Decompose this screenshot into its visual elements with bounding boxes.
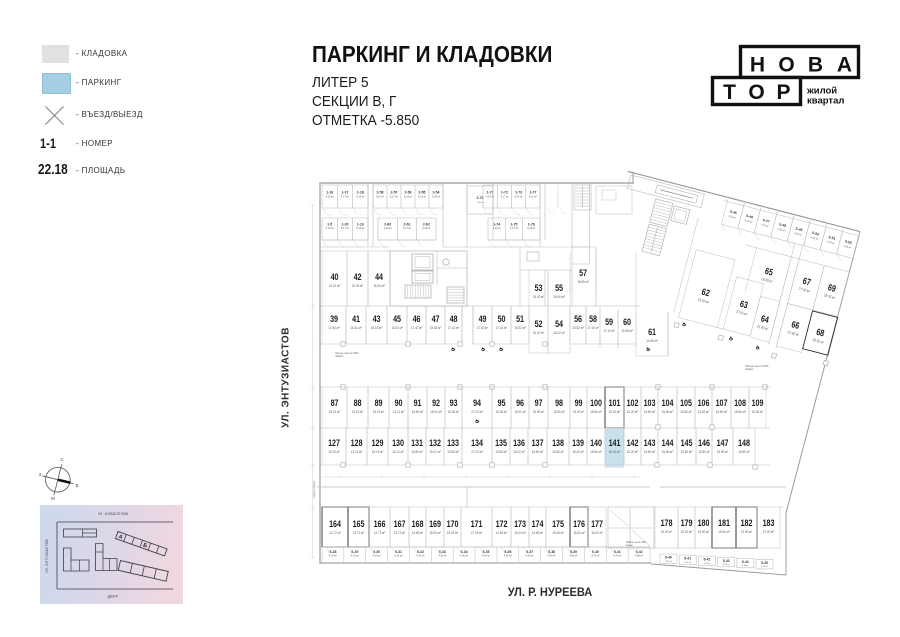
svg-text:4.35 м²: 4.35 м² (793, 232, 802, 237)
svg-text:4.25 м²: 4.25 м² (394, 555, 402, 558)
svg-text:2-55: 2-55 (418, 191, 425, 195)
svg-text:1-18: 1-18 (357, 191, 364, 195)
svg-text:5-41: 5-41 (684, 557, 691, 561)
svg-text:14.80 м²: 14.80 м² (412, 531, 424, 535)
svg-text:4.48 м²: 4.48 м² (742, 564, 749, 567)
svg-text:57: 57 (579, 268, 587, 278)
svg-text:15.80 м²: 15.80 м² (412, 410, 424, 414)
svg-text:5.17 м²: 5.17 м² (341, 196, 349, 199)
svg-text:67: 67 (802, 276, 813, 288)
svg-text:13.72 м²: 13.72 м² (329, 531, 341, 535)
svg-text:4.35 м²: 4.35 м² (438, 555, 446, 558)
svg-text:15.08 м²: 15.08 м² (621, 329, 633, 333)
svg-text:13.12 м²: 13.12 м² (392, 450, 404, 454)
svg-text:15.80 м²: 15.80 м² (552, 450, 564, 454)
svg-text:169: 169 (429, 519, 441, 529)
svg-text:13.72 м²: 13.72 м² (394, 531, 406, 535)
svg-text:131: 131 (411, 438, 423, 448)
svg-text:5-35: 5-35 (482, 550, 489, 554)
svg-text:104: 104 (662, 398, 674, 408)
svg-text:43: 43 (373, 314, 381, 324)
svg-text:4.20 м²: 4.20 м² (373, 555, 381, 558)
svg-text:28.35 м²: 28.35 м² (823, 293, 836, 300)
svg-text:17.80 м²: 17.80 м² (328, 326, 340, 330)
svg-text:габарит: габарит (745, 368, 754, 371)
svg-text:5-29: 5-29 (351, 550, 358, 554)
svg-text:42: 42 (354, 272, 362, 282)
svg-text:90: 90 (395, 398, 403, 408)
svg-text:148: 148 (738, 438, 750, 448)
svg-text:2-60: 2-60 (384, 223, 391, 227)
svg-text:174: 174 (532, 519, 544, 529)
svg-text:68: 68 (815, 327, 826, 339)
svg-text:92: 92 (432, 398, 440, 408)
svg-text:5-36: 5-36 (504, 550, 511, 554)
svg-text:15.24 м²: 15.24 м² (514, 531, 526, 535)
svg-text:5-40: 5-40 (592, 550, 599, 554)
svg-text:47: 47 (432, 314, 440, 324)
svg-text:18.00 м²: 18.00 м² (609, 450, 621, 454)
svg-text:15.15 м²: 15.15 м² (373, 410, 385, 414)
svg-text:177: 177 (591, 519, 603, 529)
svg-text:2-56: 2-56 (404, 191, 411, 195)
svg-text:1-74: 1-74 (493, 223, 500, 227)
svg-text:С: С (60, 457, 63, 462)
svg-text:ДВОР: ДВОР (108, 595, 119, 599)
svg-text:109: 109 (752, 398, 764, 408)
svg-text:17.40 м²: 17.40 м² (587, 326, 599, 330)
svg-text:107: 107 (716, 398, 728, 408)
svg-text:15.52 м²: 15.52 м² (430, 326, 442, 330)
svg-text:93: 93 (450, 398, 458, 408)
svg-text:15.80 м²: 15.80 м² (447, 450, 459, 454)
svg-text:134: 134 (471, 438, 483, 448)
svg-text:18.30 м²: 18.30 м² (373, 284, 385, 288)
svg-text:69: 69 (827, 282, 838, 294)
svg-text:1-75: 1-75 (510, 223, 517, 227)
svg-text:1-19: 1-19 (357, 223, 364, 227)
svg-text:6.24 м²: 6.24 м² (356, 196, 364, 199)
svg-text:5-43: 5-43 (723, 559, 730, 563)
svg-text:4.40 м²: 4.40 м² (810, 236, 819, 241)
svg-text:Б: Б (142, 543, 148, 550)
svg-text:96: 96 (516, 398, 524, 408)
svg-text:62: 62 (701, 287, 712, 299)
svg-text:5-44: 5-44 (742, 560, 749, 564)
svg-text:100: 100 (590, 398, 602, 408)
svg-text:15.52 м²: 15.52 м² (514, 326, 526, 330)
svg-text:166: 166 (374, 519, 386, 529)
svg-text:габарит: габарит (335, 355, 344, 358)
svg-text:15.20 м²: 15.20 м² (627, 450, 639, 454)
svg-text:88: 88 (354, 398, 362, 408)
svg-text:27.03 м²: 27.03 м² (471, 450, 483, 454)
svg-text:5.17 м²: 5.17 м² (403, 227, 411, 230)
svg-text:15.80 м²: 15.80 м² (716, 410, 728, 414)
svg-text:УЛ. НОВОСЕЛОВ: УЛ. НОВОСЕЛОВ (98, 512, 128, 516)
svg-text:15.15 м²: 15.15 м² (328, 450, 340, 454)
svg-text:15.02 м²: 15.02 м² (429, 531, 441, 535)
svg-text:4.10 м²: 4.10 м² (326, 227, 334, 230)
svg-text:5.38 м²: 5.38 м² (432, 196, 440, 199)
svg-text:заезд в паркинг: заезд в паркинг (313, 481, 316, 498)
svg-text:59: 59 (605, 317, 613, 327)
svg-text:15.51 м²: 15.51 м² (573, 531, 585, 535)
svg-text:6.24 м²: 6.24 м² (422, 227, 430, 230)
svg-text:4.60 м²: 4.60 м² (548, 555, 556, 558)
svg-text:20.05 м²: 20.05 м² (352, 284, 364, 288)
svg-text:15.80 м²: 15.80 м² (662, 410, 674, 414)
svg-text:48: 48 (450, 314, 458, 324)
svg-text:146: 146 (698, 438, 710, 448)
svg-text:45: 45 (393, 314, 401, 324)
svg-text:101: 101 (609, 398, 621, 408)
svg-text:14.51 м²: 14.51 м² (391, 326, 403, 330)
svg-text:27.03 м²: 27.03 м² (471, 531, 483, 535)
svg-text:4.30 м²: 4.30 м² (777, 228, 786, 233)
svg-text:2-57: 2-57 (390, 191, 397, 195)
svg-text:182: 182 (741, 518, 753, 528)
svg-text:В: В (76, 483, 79, 488)
svg-text:15.02 м²: 15.02 м² (553, 331, 565, 335)
svg-text:1-76: 1-76 (528, 223, 535, 227)
svg-text:4.50 м²: 4.50 м² (504, 555, 512, 558)
svg-text:13.15 м²: 13.15 м² (351, 450, 363, 454)
svg-text:15.80 м²: 15.80 м² (590, 450, 602, 454)
svg-text:4.25 м²: 4.25 м² (761, 223, 770, 228)
svg-text:4.10 м²: 4.10 м² (329, 555, 337, 558)
svg-text:46: 46 (413, 314, 421, 324)
svg-text:1-16: 1-16 (326, 191, 333, 195)
svg-text:15.01 м²: 15.01 м² (430, 410, 442, 414)
svg-text:102: 102 (627, 398, 639, 408)
svg-text:56: 56 (574, 314, 582, 324)
svg-text:13.72 м²: 13.72 м² (353, 531, 365, 535)
svg-text:5-42: 5-42 (636, 550, 643, 554)
svg-text:4.40 м²: 4.40 м² (460, 555, 468, 558)
svg-text:15.02 м²: 15.02 м² (513, 450, 525, 454)
svg-text:17.40 м²: 17.40 м² (603, 329, 615, 333)
svg-text:13.82 м²: 13.82 м² (698, 450, 710, 454)
svg-text:171: 171 (471, 519, 483, 529)
svg-text:17.42 м²: 17.42 м² (448, 326, 460, 330)
svg-text:6.24 м²: 6.24 м² (356, 227, 364, 230)
svg-text:141: 141 (609, 438, 621, 448)
svg-text:105: 105 (680, 398, 692, 408)
svg-text:140: 140 (590, 438, 602, 448)
svg-text:4.10 м²: 4.10 м² (493, 227, 501, 230)
svg-text:15.06 м²: 15.06 м² (552, 531, 564, 535)
svg-text:15.80 м²: 15.80 м² (644, 410, 656, 414)
svg-text:4.34 м²: 4.34 м² (704, 562, 711, 565)
svg-text:94: 94 (473, 398, 481, 408)
svg-text:6.24 м²: 6.24 м² (404, 196, 412, 199)
svg-text:15.80 м²: 15.80 м² (495, 450, 507, 454)
svg-text:167: 167 (394, 519, 406, 529)
svg-text:183: 183 (763, 518, 775, 528)
svg-text:17.42 м²: 17.42 м² (477, 326, 489, 330)
svg-text:4.65 м²: 4.65 м² (569, 555, 577, 558)
svg-text:УЛ. ЭНТУЗИАСТОВ: УЛ. ЭНТУЗИАСТОВ (45, 539, 49, 573)
svg-text:50: 50 (498, 314, 506, 324)
svg-text:15.20 м²: 15.20 м² (572, 450, 584, 454)
svg-text:4.20 м²: 4.20 м² (744, 219, 753, 224)
svg-text:15.80 м²: 15.80 м² (496, 410, 508, 414)
svg-text:13.90 м²: 13.90 м² (741, 530, 753, 534)
svg-text:87: 87 (331, 398, 339, 408)
svg-text:1-77: 1-77 (529, 191, 536, 195)
svg-text:98: 98 (555, 398, 563, 408)
svg-text:137: 137 (532, 438, 544, 448)
svg-text:5.17 м²: 5.17 м² (500, 196, 508, 199)
svg-text:4.75 м²: 4.75 м² (613, 555, 621, 558)
svg-text:164: 164 (329, 519, 341, 529)
svg-text:15.01 м²: 15.01 м² (514, 410, 526, 414)
svg-text:144: 144 (662, 438, 674, 448)
svg-text:5.17 м²: 5.17 м² (510, 227, 518, 230)
svg-text:4.10 м²: 4.10 м² (326, 196, 334, 199)
svg-text:15.80 м²: 15.80 м² (533, 410, 545, 414)
svg-text:180: 180 (698, 518, 710, 528)
svg-text:27.60 м²: 27.60 м² (787, 330, 800, 337)
svg-text:133: 133 (447, 438, 459, 448)
svg-text:41: 41 (352, 314, 360, 324)
svg-text:5-37: 5-37 (526, 550, 533, 554)
svg-text:15.80 м²: 15.80 м² (681, 450, 693, 454)
svg-text:27.60 м²: 27.60 м² (798, 287, 811, 294)
svg-text:15.02 м²: 15.02 м² (447, 531, 459, 535)
svg-text:15.52 м²: 15.52 м² (572, 326, 584, 330)
svg-text:2-54: 2-54 (432, 191, 439, 195)
svg-text:4.55 м²: 4.55 м² (761, 565, 768, 568)
svg-text:51: 51 (516, 314, 524, 324)
svg-text:139: 139 (572, 438, 584, 448)
svg-text:15.80 м²: 15.80 м² (738, 450, 750, 454)
svg-text:58: 58 (589, 314, 597, 324)
svg-text:145: 145 (681, 438, 693, 448)
svg-text:14.85 м²: 14.85 м² (646, 339, 658, 343)
svg-text:49: 49 (479, 314, 487, 324)
svg-text:15.00 м²: 15.00 м² (609, 410, 621, 414)
svg-text:5-30: 5-30 (373, 550, 380, 554)
svg-text:Ю: Ю (51, 496, 56, 501)
svg-text:15.80 м²: 15.80 м² (734, 410, 746, 414)
svg-text:19.02 м²: 19.02 м² (329, 284, 341, 288)
svg-text:15.80 м²: 15.80 м² (553, 410, 565, 414)
svg-text:1-17: 1-17 (341, 191, 348, 195)
svg-text:17.42 м²: 17.42 м² (496, 326, 508, 330)
svg-text:17.42 м²: 17.42 м² (411, 326, 423, 330)
svg-text:16.31 м²: 16.31 м² (350, 326, 362, 330)
svg-text:15.02 м²: 15.02 м² (533, 295, 545, 299)
svg-text:99: 99 (575, 398, 583, 408)
svg-text:15.15 м²: 15.15 м² (372, 450, 384, 454)
svg-text:4.10 м²: 4.10 м² (376, 196, 384, 199)
svg-text:15.06 м²: 15.06 м² (553, 295, 565, 299)
svg-text:15.90 м²: 15.90 м² (718, 530, 730, 534)
svg-text:4.31 м²: 4.31 м² (418, 196, 426, 199)
svg-text:15.20 м²: 15.20 м² (661, 530, 673, 534)
svg-text:61: 61 (648, 327, 656, 337)
svg-text:4.30 м²: 4.30 м² (416, 555, 424, 558)
svg-text:14.80 м²: 14.80 м² (532, 531, 544, 535)
svg-text:15.80 м²: 15.80 м² (590, 410, 602, 414)
svg-text:103: 103 (644, 398, 656, 408)
svg-text:5-42: 5-42 (704, 558, 711, 562)
svg-text:54: 54 (555, 319, 563, 329)
svg-text:91: 91 (414, 398, 422, 408)
svg-text:138: 138 (552, 438, 564, 448)
svg-text:28.30 м²: 28.30 м² (812, 338, 825, 345)
svg-text:106: 106 (698, 398, 710, 408)
svg-text:136: 136 (513, 438, 525, 448)
svg-text:181: 181 (718, 518, 730, 528)
svg-text:5-34: 5-34 (461, 550, 468, 554)
svg-text:5-31: 5-31 (395, 550, 402, 554)
svg-text:5.17 м²: 5.17 м² (390, 196, 398, 199)
svg-text:13.12 м²: 13.12 м² (393, 410, 405, 414)
svg-text:179: 179 (681, 518, 693, 528)
svg-text:2-70: 2-70 (476, 196, 483, 200)
svg-text:132: 132 (429, 438, 441, 448)
svg-text:27.03 м²: 27.03 м² (471, 410, 483, 414)
svg-text:143: 143 (644, 438, 656, 448)
svg-text:15.80 м²: 15.80 м² (644, 450, 656, 454)
svg-text:172: 172 (496, 519, 508, 529)
svg-text:4.45 м²: 4.45 м² (826, 240, 835, 245)
svg-text:89: 89 (375, 398, 383, 408)
svg-text:19.02 м²: 19.02 м² (697, 298, 710, 305)
svg-text:4.41 м²: 4.41 м² (723, 563, 730, 566)
svg-text:4.55 м²: 4.55 м² (526, 555, 534, 558)
svg-text:19.00 м²: 19.00 м² (761, 277, 774, 284)
svg-text:129: 129 (372, 438, 384, 448)
svg-text:4.45 м²: 4.45 м² (482, 555, 490, 558)
svg-text:5-28: 5-28 (329, 550, 336, 554)
svg-text:13.15 м²: 13.15 м² (352, 410, 364, 414)
svg-text:15.80 м²: 15.80 м² (532, 450, 544, 454)
svg-text:178: 178 (661, 518, 673, 528)
svg-text:5-40: 5-40 (665, 556, 672, 560)
svg-text:64: 64 (760, 314, 771, 326)
svg-text:6.24 м²: 6.24 м² (515, 196, 523, 199)
svg-text:А: А (118, 534, 124, 541)
svg-text:147: 147 (717, 438, 729, 448)
svg-text:15.20 м²: 15.20 м² (627, 410, 639, 414)
svg-text:15.80 м²: 15.80 м² (662, 450, 674, 454)
svg-text:15.02 м²: 15.02 м² (533, 331, 545, 335)
svg-text:66: 66 (790, 319, 801, 331)
svg-text:55: 55 (555, 283, 563, 293)
svg-text:14.80 м²: 14.80 м² (496, 531, 508, 535)
svg-text:175: 175 (552, 519, 564, 529)
svg-text:165: 165 (353, 519, 365, 529)
svg-text:15.80 м²: 15.80 м² (680, 410, 692, 414)
svg-text:4.15 м²: 4.15 м² (351, 555, 359, 558)
svg-text:5-38: 5-38 (548, 550, 555, 554)
svg-text:1-20: 1-20 (341, 223, 348, 227)
svg-text:6.24 м²: 6.24 м² (527, 227, 535, 230)
svg-text:108: 108 (734, 398, 746, 408)
svg-text:5-32: 5-32 (417, 550, 424, 554)
svg-text:2-58: 2-58 (376, 191, 383, 195)
svg-text:44: 44 (375, 272, 383, 282)
svg-text:40: 40 (331, 272, 339, 282)
svg-text:15.80 м²: 15.80 м² (717, 450, 729, 454)
svg-text:170: 170 (447, 519, 459, 529)
svg-text:176: 176 (573, 519, 585, 529)
svg-text:127: 127 (328, 438, 340, 448)
svg-text:4.20 м²: 4.20 м² (665, 560, 672, 563)
svg-text:14.72 м²: 14.72 м² (374, 531, 386, 535)
svg-text:15.15 м²: 15.15 м² (329, 410, 341, 414)
svg-text:97: 97 (535, 398, 543, 408)
svg-text:95: 95 (498, 398, 506, 408)
svg-text:128: 128 (351, 438, 363, 448)
svg-text:15.00 м²: 15.00 м² (591, 531, 603, 535)
svg-text:15.80 м²: 15.80 м² (752, 410, 764, 414)
svg-text:13.82 м²: 13.82 м² (698, 410, 710, 414)
svg-text:2-62: 2-62 (423, 223, 430, 227)
svg-text:27.00 м²: 27.00 м² (763, 530, 775, 534)
svg-text:4.70 м²: 4.70 м² (591, 555, 599, 558)
svg-text:4.31 м²: 4.31 м² (529, 196, 537, 199)
svg-text:15.80 м²: 15.80 м² (448, 410, 460, 414)
svg-text:65: 65 (764, 266, 775, 278)
svg-text:1-5: 1-5 (327, 223, 332, 227)
svg-text:выезд: выезд (626, 544, 633, 547)
svg-text:15.01 м²: 15.01 м² (429, 450, 441, 454)
svg-text:5-39: 5-39 (570, 550, 577, 554)
svg-text:52: 52 (535, 319, 543, 329)
svg-text:15.00 м²: 15.00 м² (681, 530, 693, 534)
svg-text:З: З (39, 472, 42, 477)
svg-text:135: 135 (495, 438, 507, 448)
svg-text:21.40 м²: 21.40 м² (757, 324, 770, 331)
svg-text:18.65 м²: 18.65 м² (577, 280, 589, 284)
svg-text:130: 130 (392, 438, 404, 448)
svg-text:16.15 м²: 16.15 м² (371, 326, 383, 330)
svg-text:5-41: 5-41 (614, 550, 621, 554)
svg-text:4.80 м²: 4.80 м² (635, 555, 643, 558)
svg-text:1-73: 1-73 (515, 191, 522, 195)
svg-text:4.50 м²: 4.50 м² (843, 245, 852, 250)
svg-text:168: 168 (412, 519, 424, 529)
svg-text:4.27 м²: 4.27 м² (684, 561, 691, 564)
svg-text:60: 60 (623, 317, 631, 327)
svg-text:142: 142 (627, 438, 639, 448)
svg-text:5-45: 5-45 (761, 561, 768, 565)
svg-text:5-33: 5-33 (439, 550, 446, 554)
svg-text:15.20 м²: 15.20 м² (573, 410, 585, 414)
svg-text:63: 63 (739, 299, 750, 311)
svg-text:173: 173 (514, 519, 526, 529)
svg-text:15.90 м²: 15.90 м² (698, 530, 710, 534)
svg-text:15.80 м²: 15.80 м² (411, 450, 423, 454)
svg-text:1-72: 1-72 (501, 191, 508, 195)
svg-text:27.62 м²: 27.62 м² (736, 309, 749, 316)
svg-text:39: 39 (330, 314, 338, 324)
svg-text:4.10 м²: 4.10 м² (384, 227, 392, 230)
svg-text:2-61: 2-61 (403, 223, 410, 227)
svg-text:4.15 м²: 4.15 м² (728, 215, 737, 220)
svg-text:5.17 м²: 5.17 м² (341, 227, 349, 230)
svg-text:53: 53 (535, 283, 543, 293)
svg-text:1-71: 1-71 (487, 191, 494, 195)
